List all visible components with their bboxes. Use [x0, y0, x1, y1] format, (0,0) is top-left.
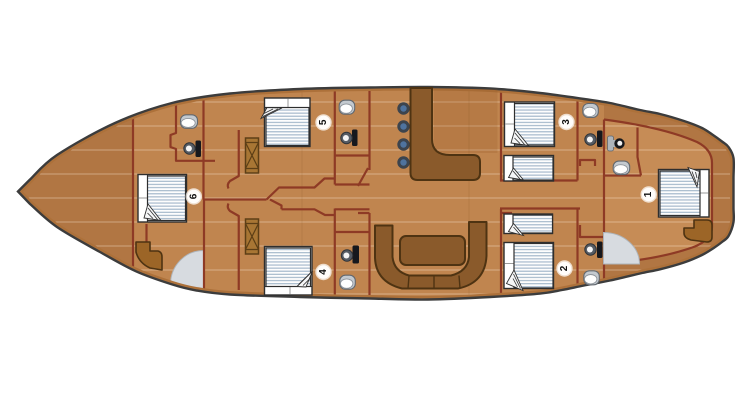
svg-text:5: 5 [318, 119, 329, 125]
svg-text:2: 2 [559, 265, 570, 271]
svg-text:4: 4 [318, 269, 329, 275]
svg-text:1: 1 [643, 191, 654, 197]
svg-text:6: 6 [188, 193, 199, 199]
svg-text:3: 3 [561, 119, 572, 125]
